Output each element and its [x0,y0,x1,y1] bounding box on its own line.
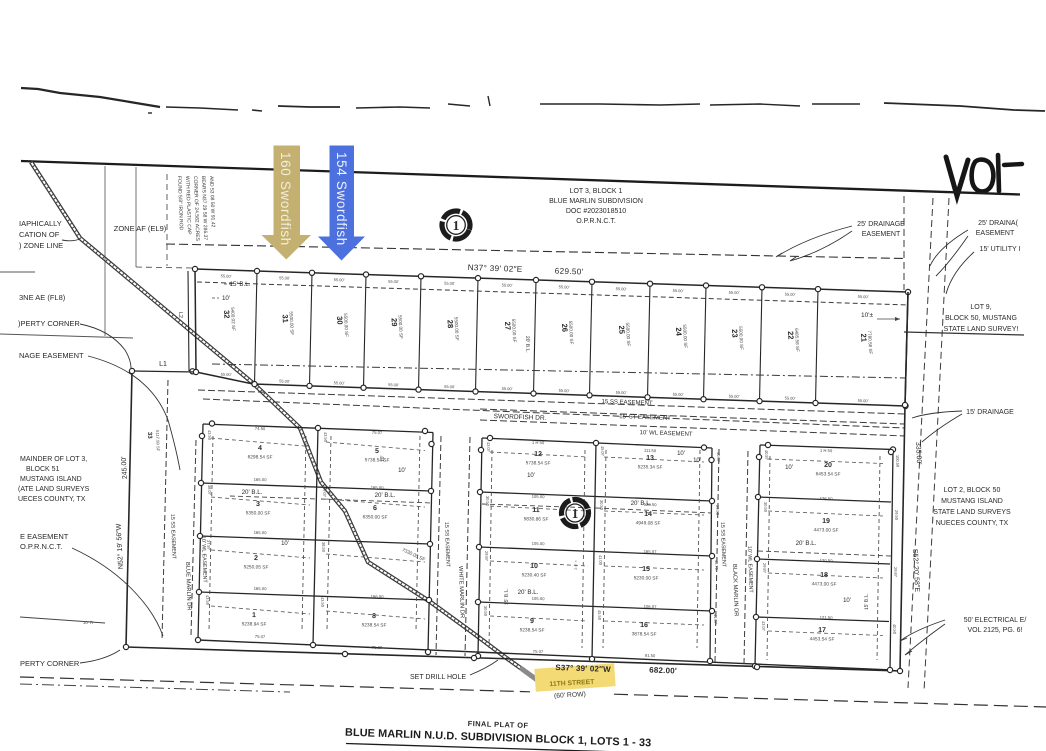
svg-text:32: 32 [222,310,231,319]
svg-text:682.00': 682.00' [649,666,677,676]
svg-text:10': 10' [527,473,535,479]
svg-text:PERTY CORNER: PERTY CORNER [20,659,80,668]
svg-text:45.07: 45.07 [600,446,605,457]
svg-text:SET DRILL HOLE: SET DRILL HOLE [410,674,466,681]
svg-text:1 H 50: 1 H 50 [820,448,833,453]
svg-text:25: 25 [617,325,626,335]
svg-text:IAPHICALLY: IAPHICALLY [19,219,62,228]
svg-text:55.00': 55.00' [559,388,570,393]
svg-text:55.00': 55.00' [334,277,345,282]
svg-text:75.07: 75.07 [372,645,383,650]
svg-text:3: 3 [256,501,260,508]
svg-text:1: 1 [252,612,256,619]
svg-text:29.50: 29.50 [715,505,720,516]
svg-text:29: 29 [390,318,399,327]
svg-text:25' DRAINA(: 25' DRAINA( [978,220,1019,227]
svg-text:2.6' ×: 2.6' × [573,559,578,569]
svg-text:55.00': 55.00' [729,394,740,399]
svg-text:29.87: 29.87 [484,551,489,562]
svg-text:41.00: 41.00 [598,555,603,566]
svg-text:22: 22 [786,331,795,340]
svg-text:38.07: 38.07 [207,485,212,496]
svg-text:)PERTY CORNER: )PERTY CORNER [18,319,80,328]
svg-text:154 Swordfish: 154 Swordfish [334,152,349,246]
svg-text:DOC #2023018510: DOC #2023018510 [566,208,626,215]
svg-text:55.00': 55.00' [785,395,796,400]
svg-text:LOT 2, BLOCK 50: LOT 2, BLOCK 50 [944,487,1001,494]
svg-text:105.00: 105.00 [532,541,546,546]
svg-text:165.00: 165.00 [254,530,268,535]
svg-text:28: 28 [446,320,455,329]
svg-text:55.00': 55.00' [444,384,455,389]
svg-text:55.00': 55.00' [785,292,796,297]
svg-text:43.07: 43.07 [761,621,766,632]
svg-text:121.50: 121.50 [820,615,834,620]
svg-text:100.50: 100.50 [895,455,900,468]
svg-text:NAGE EASEMENT: NAGE EASEMENT [19,351,84,360]
svg-text:2: 2 [254,555,258,562]
svg-text:335.00': 335.00' [914,442,922,465]
svg-text:75.07: 75.07 [533,649,544,654]
svg-text:21: 21 [859,333,868,343]
svg-text:10': 10' [222,295,230,302]
svg-text:UECES COUNTY, TX: UECES COUNTY, TX [18,496,86,503]
svg-text:10': 10' [785,465,793,471]
svg-text:55.00': 55.00' [221,372,232,377]
svg-text:CATION OF: CATION OF [19,230,60,239]
svg-text:10': 10' [398,468,406,474]
svg-text:38.50: 38.50 [321,542,326,553]
svg-text:165.07: 165.07 [644,549,658,554]
svg-text:5238.94 SF: 5238.94 SF [242,621,267,627]
svg-text:16: 16 [640,622,648,629]
svg-text:BLUE MARLIN SUBDIVISION: BLUE MARLIN SUBDIVISION [549,198,643,205]
svg-text:20' B.L.: 20' B.L. [242,489,263,496]
svg-text:41.07: 41.07 [713,614,718,625]
svg-text:29.50: 29.50 [894,510,899,521]
svg-text:629.50': 629.50' [555,267,584,277]
svg-text:20: 20 [824,462,832,469]
svg-text:5230.00 SF: 5230.00 SF [634,575,659,581]
svg-text:45.50: 45.50 [597,610,602,621]
svg-text:STATE LAND SURVEYS: STATE LAND SURVEYS [933,509,1011,516]
svg-text:43.07: 43.07 [486,442,491,453]
svg-text:30.50: 30.50 [763,502,768,513]
svg-text:STATE LAND SURVEY!: STATE LAND SURVEY! [944,326,1019,333]
svg-text:20' B.L.: 20' B.L. [796,540,817,547]
svg-text:126.50: 126.50 [820,496,834,501]
svg-text:4473.00 SF: 4473.00 SF [812,581,837,587]
svg-text:13: 13 [646,455,654,462]
svg-text:L2: L2 [177,312,183,318]
svg-text:N37° 39′ 02″E: N37° 39′ 02″E [468,263,523,274]
svg-text:5235.34 SF: 5235.34 SF [638,464,663,470]
svg-text:6298.54 SF: 6298.54 SF [248,454,273,460]
svg-text:(ATE LAND SURVEYS: (ATE LAND SURVEYS [18,486,90,493]
svg-text:30.50: 30.50 [485,496,490,507]
svg-text:L1: L1 [159,361,167,368]
svg-text:126.50: 126.50 [644,502,658,507]
svg-text:4453.54 SF: 4453.54 SF [810,636,835,642]
svg-text:EASEMENT: EASEMENT [862,231,901,238]
svg-text:MAINDER OF LOT 3,: MAINDER OF LOT 3, [20,456,87,463]
svg-text:30.50: 30.50 [483,606,488,617]
svg-text:40.07: 40.07 [716,452,721,463]
svg-text:160 Swordfish: 160 Swordfish [278,152,293,246]
svg-text:55.00': 55.00' [279,378,290,383]
svg-text:55.00': 55.00' [858,294,869,299]
svg-text:40.50: 40.50 [892,624,897,635]
svg-text:120.50: 120.50 [820,558,834,563]
svg-text:1: 1 [572,506,579,521]
svg-text:6453.54 SF: 6453.54 SF [816,471,841,477]
svg-text:33: 33 [146,432,152,440]
svg-text:17: 17 [818,627,826,634]
svg-text:5350.00 SF: 5350.00 SF [246,510,271,516]
svg-text:5738.54 SF: 5738.54 SF [526,460,551,466]
svg-text:1 H 50: 1 H 50 [532,440,545,445]
svg-text:15' B.L.: 15' B.L. [863,593,870,610]
svg-text:43.50: 43.50 [320,597,325,608]
svg-text:43.50: 43.50 [323,432,328,443]
svg-text:10: 10 [530,563,538,570]
svg-text:10': 10' [281,541,289,547]
svg-text:10': 10' [843,598,851,604]
svg-text:5738.54 SF: 5738.54 SF [365,457,390,463]
svg-text:55.00': 55.00' [673,392,684,397]
svg-text:BLOCK 50, MUSTANG: BLOCK 50, MUSTANG [945,315,1017,322]
svg-text:ZONE AF (EL9): ZONE AF (EL9) [114,224,167,233]
svg-text:20' B.L.: 20' B.L. [375,492,396,499]
svg-text:5117.98 SF: 5117.98 SF [155,430,161,452]
svg-text:29.87: 29.87 [762,563,767,574]
svg-text:MUSTANG ISLAND: MUSTANG ISLAND [20,476,82,483]
svg-text:15' B.L.: 15' B.L. [503,588,510,605]
svg-text:19: 19 [822,518,830,525]
svg-text:25' DRAINAGE: 25' DRAINAGE [857,221,905,228]
svg-text:55.00': 55.00' [673,288,684,293]
svg-text:) ZONE LINE: ) ZONE LINE [19,241,63,250]
svg-text:50' ELECTRICAL E/: 50' ELECTRICAL E/ [964,617,1027,624]
svg-text:4949.08 SF: 4949.08 SF [636,520,661,526]
svg-text:55.00': 55.00' [502,282,513,287]
svg-text:15' DRAINAGE: 15' DRAINAGE [966,409,1014,416]
svg-text:55.00': 55.00' [221,273,232,278]
svg-text:NUECES COUNTY, TX: NUECES COUNTY, TX [936,520,1009,527]
svg-text:VOL 2125, PG. 6!: VOL 2125, PG. 6! [968,627,1023,634]
svg-text:55.00': 55.00' [729,290,740,295]
svg-text:LOT 3, BLOCK 1: LOT 3, BLOCK 1 [570,188,623,195]
svg-text:166.00: 166.00 [371,594,385,599]
svg-text:10'±: 10'± [861,312,873,319]
svg-text:43.50: 43.50 [207,430,212,441]
svg-text:55.00': 55.00' [388,279,399,284]
svg-text:37.87: 37.87 [206,540,211,551]
svg-text:4473.00 SF: 4473.00 SF [814,527,839,533]
svg-text:14: 14 [644,511,652,518]
svg-text:5230.40 SF: 5230.40 SF [522,572,547,578]
svg-text:55.00': 55.00' [388,382,399,387]
svg-text:26: 26 [560,323,569,332]
svg-text:6350.00 SF: 6350.00 SF [363,514,388,520]
svg-text:5238.54 SF: 5238.54 SF [362,622,387,628]
svg-text:10' R: 10' R [83,620,94,625]
svg-text:75.07: 75.07 [372,430,383,435]
svg-text:EASEMENT: EASEMENT [976,230,1015,237]
svg-text:O.P.R.N.C.T.: O.P.R.N.C.T. [20,542,62,551]
svg-text:23: 23 [730,329,739,338]
svg-text:5250.05 SF: 5250.05 SF [244,564,269,570]
svg-text:O.P.R.N.C.T.: O.P.R.N.C.T. [576,218,616,225]
svg-text:MUSTANG ISLAND: MUSTANG ISLAND [941,498,1003,505]
svg-text:245.00': 245.00' [121,456,129,479]
svg-text:30: 30 [335,316,344,325]
svg-text:3NE AE (FL8): 3NE AE (FL8) [19,293,66,302]
svg-text:15: 15 [642,566,650,573]
svg-text:5238.54 SF: 5238.54 SF [520,627,545,633]
svg-text:75.07: 75.07 [255,634,266,639]
svg-text:74.50: 74.50 [255,426,266,431]
svg-text:1: 1 [453,218,460,233]
svg-text:40.87: 40.87 [764,450,769,461]
svg-text:8: 8 [372,613,376,620]
svg-text:5: 5 [375,448,379,455]
svg-text:6: 6 [373,505,377,512]
svg-text:111.50: 111.50 [644,448,657,453]
svg-text:30.50: 30.50 [599,500,604,511]
svg-text:5830.86 SF: 5830.86 SF [524,516,549,522]
svg-text:43.50: 43.50 [205,595,210,606]
svg-text:55.00': 55.00' [616,390,627,395]
svg-text:3878.54 SF: 3878.54 SF [632,631,657,637]
svg-text:11: 11 [532,507,540,514]
svg-text:43.75: 43.75 [714,560,719,571]
svg-text:15' B.L.: 15' B.L. [230,281,251,288]
svg-text:105.00: 105.00 [532,494,546,499]
svg-text:4: 4 [258,445,262,452]
svg-text:15' UTILITY I: 15' UTILITY I [980,246,1021,253]
svg-text:55.00': 55.00' [559,284,570,289]
svg-text:165.00: 165.00 [254,586,268,591]
svg-text:29.87: 29.87 [893,567,898,578]
svg-text:165.00: 165.00 [254,477,268,482]
svg-text:24: 24 [674,327,683,337]
svg-text:55.00': 55.00' [502,386,513,391]
svg-text:55.00': 55.00' [334,380,345,385]
svg-text:106.07: 106.07 [644,604,658,609]
svg-text:10': 10' [693,458,701,464]
svg-text:55.00': 55.00' [444,281,455,286]
svg-text:55.00': 55.00' [616,286,627,291]
svg-text:27: 27 [503,321,512,330]
svg-text:BLOCK 51: BLOCK 51 [26,466,60,473]
svg-text:9: 9 [530,618,534,625]
svg-text:105.00: 105.00 [532,596,546,601]
svg-text:55.00': 55.00' [279,275,290,280]
svg-text:165.00: 165.00 [371,485,385,490]
svg-text:91.50: 91.50 [645,653,656,658]
svg-text:12: 12 [534,451,542,458]
svg-text:39.07: 39.07 [322,487,327,498]
svg-text:E EASEMENT: E EASEMENT [20,532,69,541]
svg-text:10': 10' [677,451,685,457]
svg-text:31: 31 [281,314,290,324]
svg-text:LOT 9,: LOT 9, [970,304,991,311]
svg-text:18: 18 [820,572,828,579]
svg-text:55.00': 55.00' [858,398,869,403]
svg-text:20' B.L.: 20' B.L. [524,336,531,353]
